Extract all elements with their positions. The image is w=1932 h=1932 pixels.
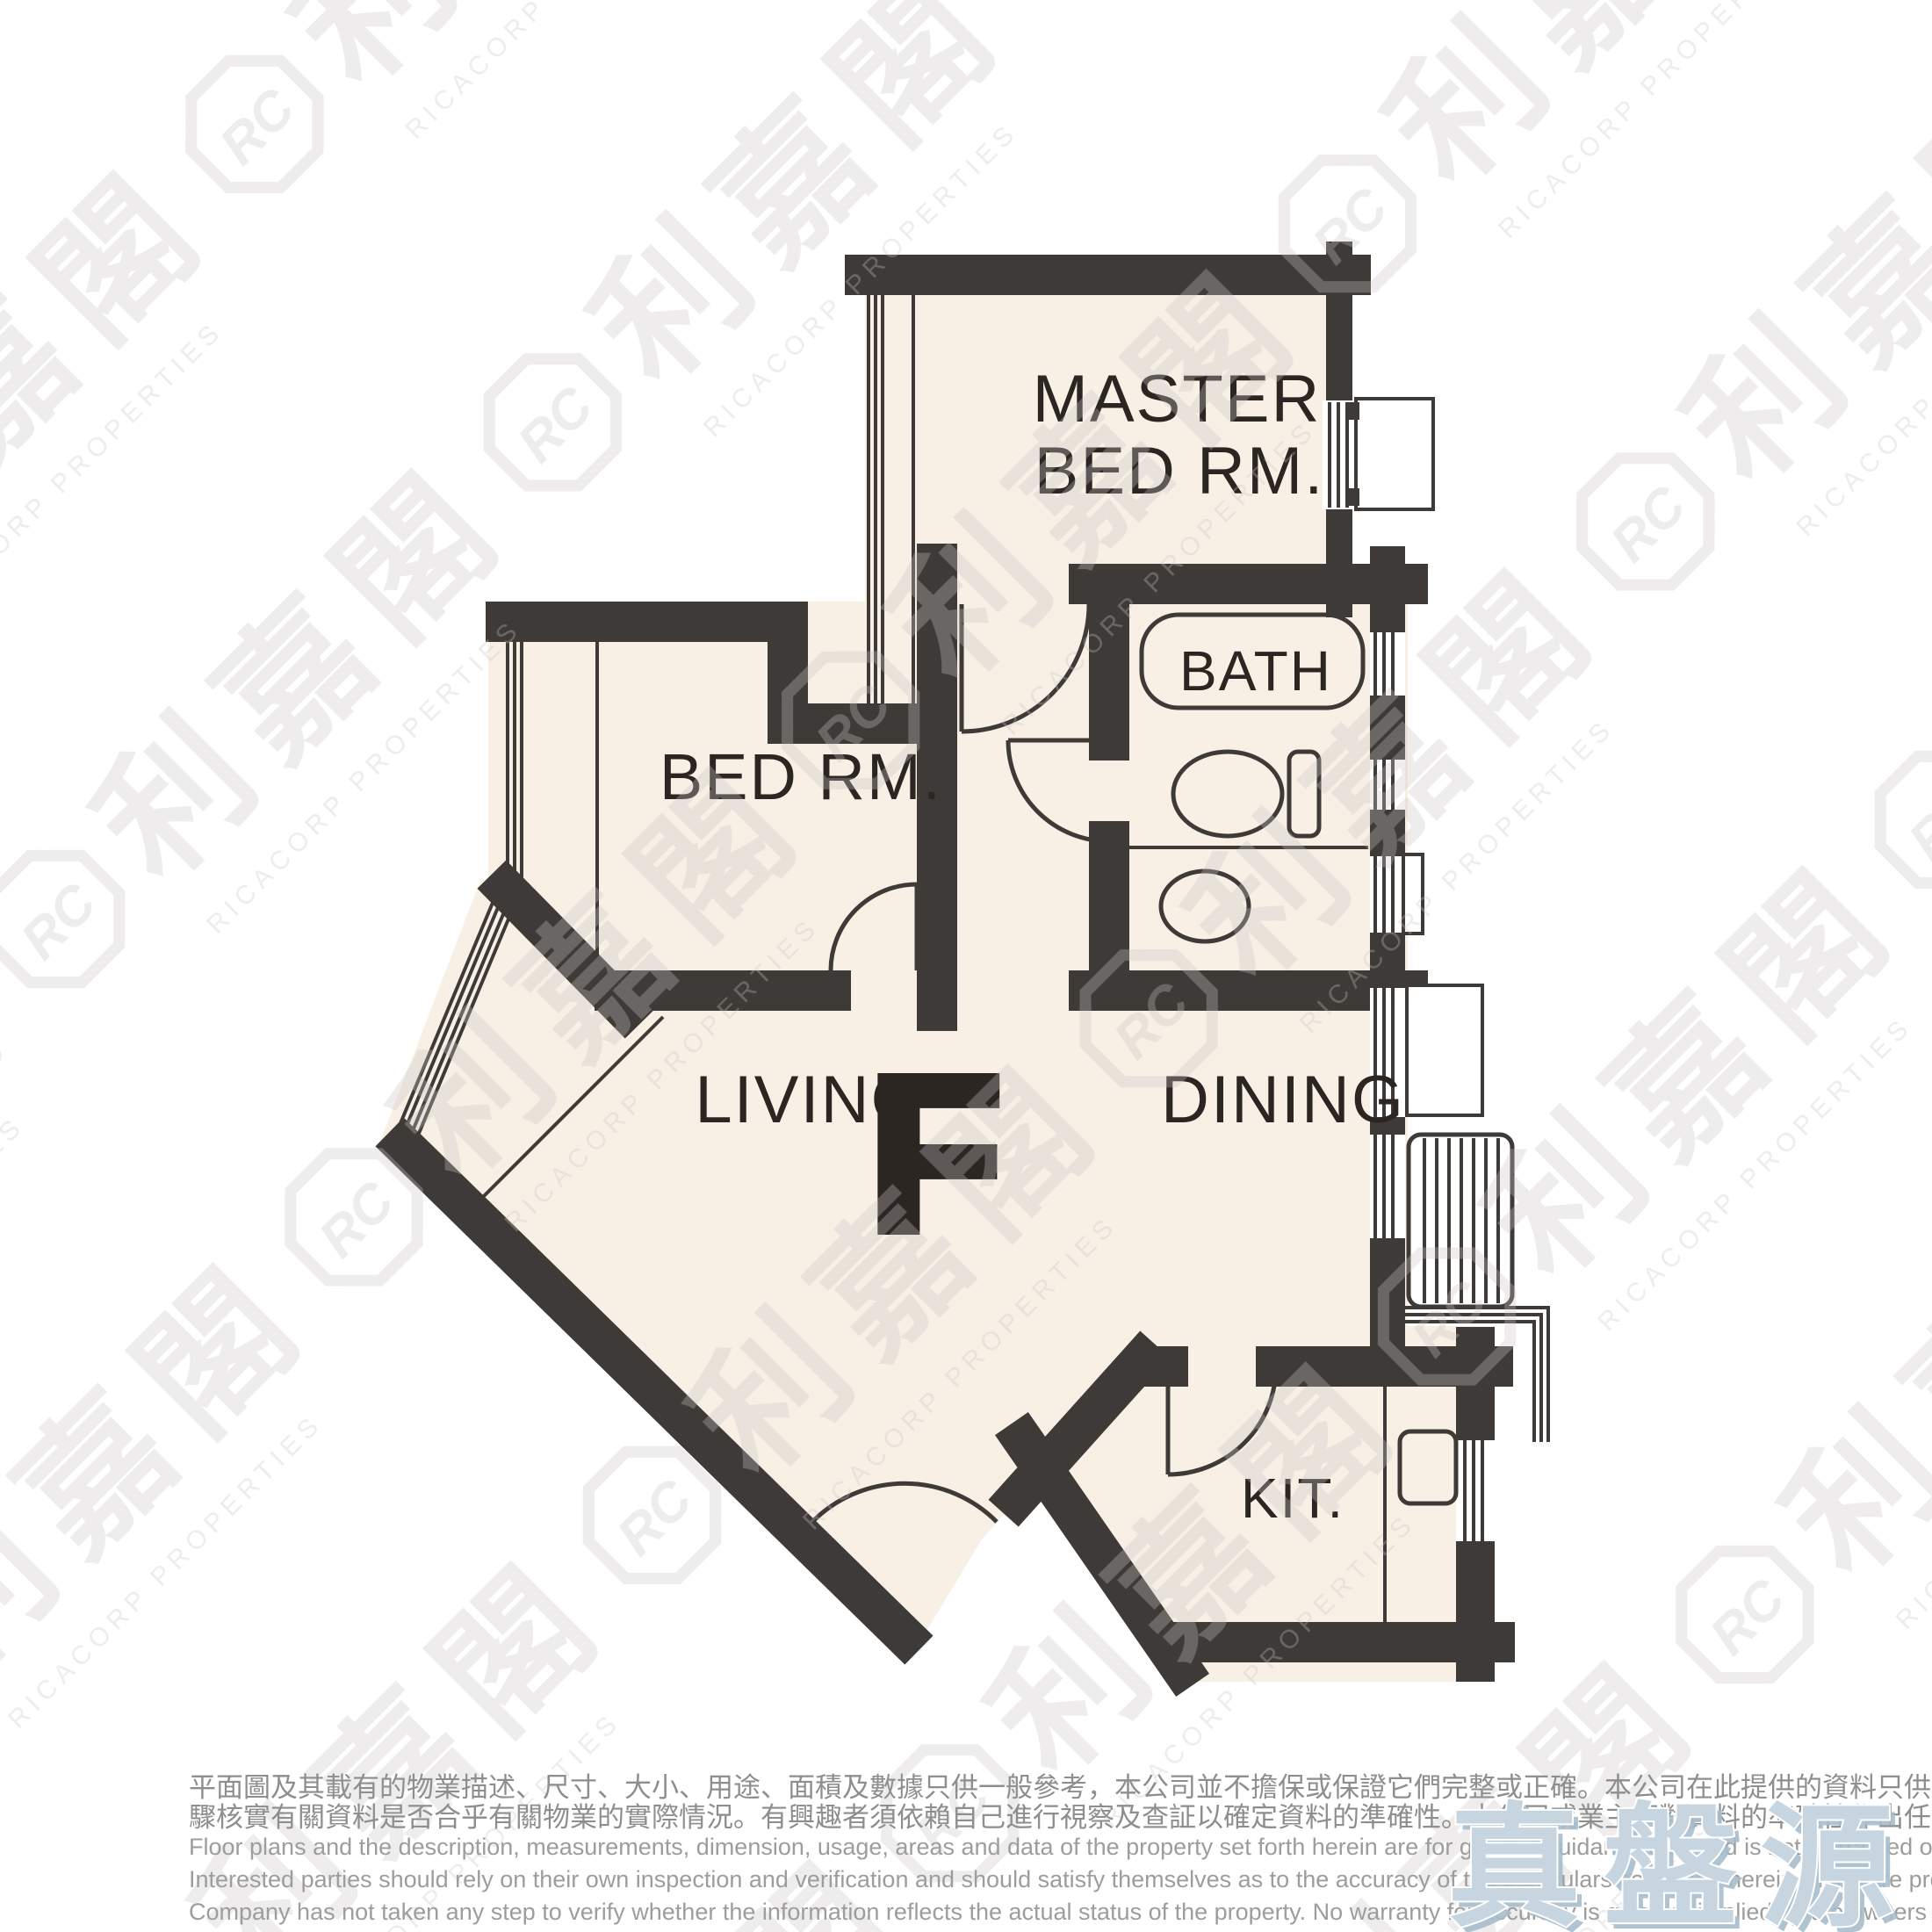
property-source-logo-text: 真盤源 <box>1447 1793 1916 1932</box>
property-source-logo: 真盤源 真盤源 <box>1447 1793 1922 1932</box>
ricacorp-watermark-overlay <box>0 0 1932 1932</box>
floorplan-canvas: RC 利嘉閣 RICACORP PROPERTIES <box>0 0 1932 1932</box>
